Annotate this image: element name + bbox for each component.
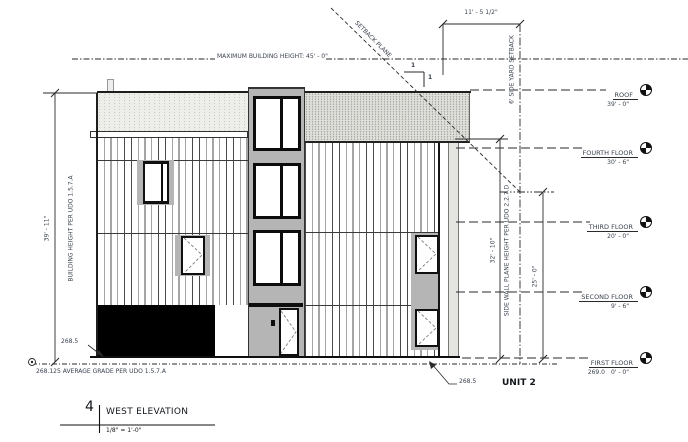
slope-run-label: 1: [428, 74, 432, 81]
west-elevation-drawing: ROOF 39' - 0" FOURTH FLOOR 30' - 6" THIR…: [0, 0, 688, 442]
dimension-ticks: [51, 20, 547, 366]
spot-grade-leaders: [88, 345, 457, 384]
view-scale: 1/8" = 1'-0": [106, 427, 141, 434]
side-wall-label: SIDE WALL PLANE HEIGHT PER UDO 2.2.7.D: [504, 156, 511, 346]
building-height-label: BUILDING HEIGHT PER UDO 1.5.7.A: [68, 144, 75, 314]
grade-datum-point: [29, 359, 36, 366]
level-marker-second: SECOND FLOOR 9' - 6": [548, 284, 638, 310]
level-name: SECOND FLOOR: [579, 293, 638, 302]
slope-indicator: [404, 72, 424, 87]
unit-label: UNIT 2: [502, 380, 536, 387]
level-datum-elevation: 269.0: [588, 369, 605, 376]
level-marker-roof: ROOF 39' - 0": [548, 82, 638, 108]
level-elevation: 30' - 6": [607, 159, 629, 166]
side-yard-setback-label: 6' SIDE YARD SETBACK: [509, 25, 516, 115]
level-name: FOURTH FLOOR: [581, 149, 638, 158]
level-datum-icon: [640, 352, 652, 364]
level-name: ROOF: [613, 91, 639, 100]
operation-dashes: [184, 237, 436, 353]
level-datum-icon: [640, 216, 652, 228]
leader-arrow: [96, 350, 104, 357]
level-elevation: 9' - 6": [611, 303, 629, 310]
spot-grade-right: 268.5: [459, 378, 476, 385]
setback-plane-height-dim: 25' - 0": [532, 252, 539, 302]
level-elevation: 39' - 0": [607, 101, 629, 108]
view-title: WEST ELEVATION: [106, 409, 188, 416]
level-datum-icon: [640, 142, 652, 154]
level-marker-first: FIRST FLOOR 269.0 0' - 0": [548, 350, 638, 376]
level-datum-icon: [640, 84, 652, 96]
building-height-dim: 39' - 11": [44, 199, 51, 259]
average-grade-label: 268.125 AVERAGE GRADE PER UDO 1.5.7.A: [36, 368, 166, 375]
spot-grade-left: 268.5: [61, 338, 78, 345]
slope-rise-label: 1: [411, 62, 415, 69]
setback-plane-line: [331, 8, 520, 192]
level-name: FIRST FLOOR: [589, 359, 638, 368]
view-number: 4: [85, 404, 94, 411]
max-height-label: MAXIMUM BUILDING HEIGHT: 45' - 0": [217, 53, 328, 60]
level-datum-icon: [640, 286, 652, 298]
level-marker-third: THIRD FLOOR 20' - 0": [548, 214, 638, 240]
level-name: THIRD FLOOR: [587, 223, 638, 232]
level-elevation: 20' - 0": [607, 233, 629, 240]
dimension-lines: [43, 24, 554, 362]
level-elevation: 0' - 0": [611, 369, 629, 376]
level-marker-fourth: FOURTH FLOOR 30' - 6": [548, 140, 638, 166]
side-wall-height-dim: 32' - 10": [490, 221, 497, 281]
setback-width-dim: 11' - 5 1/2": [446, 9, 516, 16]
